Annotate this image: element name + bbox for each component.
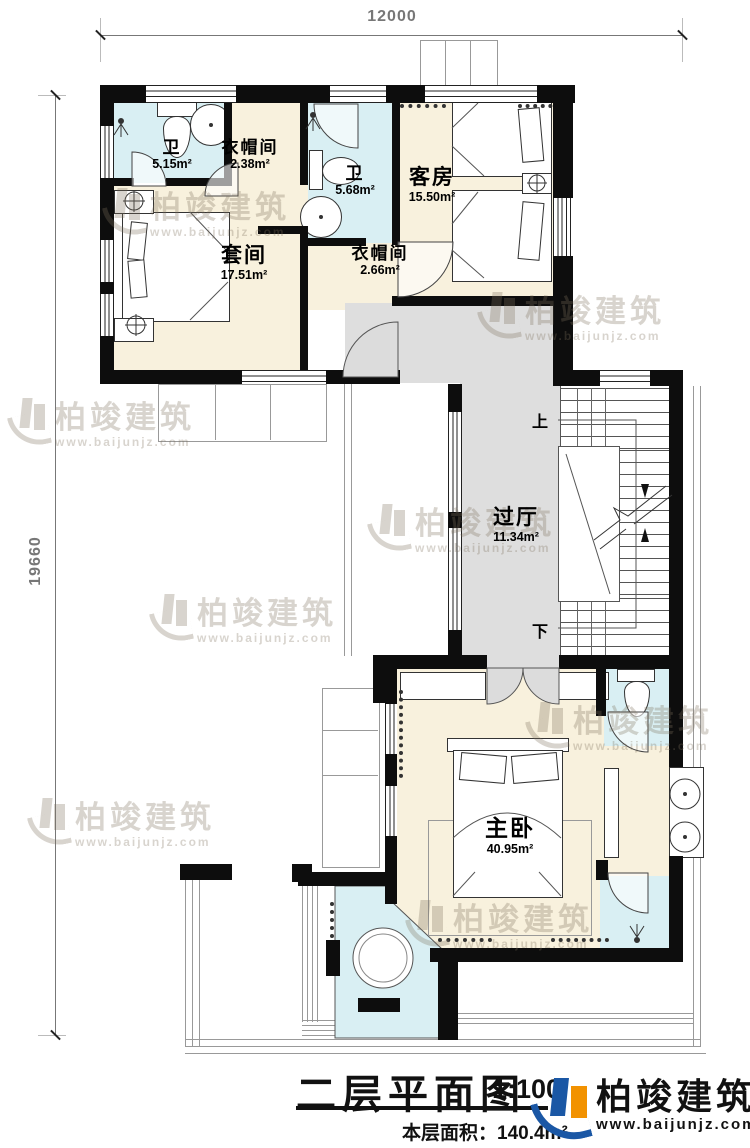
closet2-hangers xyxy=(306,246,326,308)
wall-segment xyxy=(326,940,340,976)
toilet-tank xyxy=(157,102,197,117)
wall-segment xyxy=(392,296,553,306)
wall-segment xyxy=(448,512,462,528)
wall-segment xyxy=(669,655,683,767)
window xyxy=(553,198,573,256)
dimension-height-label: 19660 xyxy=(27,531,45,591)
wall-segment xyxy=(300,95,308,185)
brand-url: www.baijunjz.com xyxy=(596,1116,750,1133)
window xyxy=(100,240,114,282)
wall-segment xyxy=(430,948,683,962)
closet1-hangers xyxy=(234,106,302,124)
curtain-coil xyxy=(400,104,446,108)
wall-segment xyxy=(100,178,134,186)
pillow xyxy=(459,752,507,784)
wall-segment xyxy=(669,856,683,962)
window xyxy=(385,786,397,836)
curtain-coil xyxy=(438,938,492,942)
window xyxy=(330,85,386,103)
stair-flight-mid xyxy=(618,450,669,600)
vanity-counter xyxy=(669,767,704,858)
room-label-suite: 套间 17.51m² xyxy=(196,244,292,282)
room-label-hall: 过厅 11.34m² xyxy=(470,506,562,544)
brand-logo-icon xyxy=(534,1078,592,1140)
wall-segment xyxy=(438,948,458,1040)
window xyxy=(100,126,114,178)
wall-segment xyxy=(300,226,308,374)
window xyxy=(448,528,462,630)
pillow xyxy=(127,259,147,298)
wall-segment xyxy=(326,370,400,384)
brand-name: 柏竣建筑 xyxy=(596,1078,750,1116)
pillow xyxy=(511,752,559,784)
wall-segment xyxy=(448,384,462,412)
room-label-closet1: 衣帽间 2.38m² xyxy=(200,138,300,171)
window xyxy=(242,370,326,384)
closet2-hangers xyxy=(326,288,392,308)
pillow xyxy=(518,107,545,163)
window xyxy=(425,85,537,103)
curtain-coil xyxy=(551,938,609,942)
stair-up-label: 上 xyxy=(532,408,548,432)
curtain-coil xyxy=(346,364,390,368)
curtain-coil xyxy=(330,902,334,938)
stair-down-label: 下 xyxy=(532,618,548,642)
nightstand xyxy=(114,190,154,214)
wall-segment xyxy=(448,630,462,658)
window xyxy=(100,294,114,336)
brand-block: 柏竣建筑 www.baijunjz.com xyxy=(534,1078,750,1140)
window xyxy=(146,85,236,103)
wall-post xyxy=(292,864,312,882)
window xyxy=(448,412,462,512)
floor-plan-canvas: 12000 19660 xyxy=(0,0,750,1148)
wall-segment xyxy=(298,872,392,886)
wall-segment xyxy=(100,370,242,384)
wall-segment xyxy=(358,998,400,1012)
room-label-master: 主卧 40.95m² xyxy=(458,816,562,856)
curtain-coil xyxy=(399,690,403,778)
window xyxy=(600,370,650,386)
nightstand xyxy=(114,318,154,342)
wall-segment xyxy=(166,178,232,186)
nightstand xyxy=(522,173,552,194)
wall-post xyxy=(180,864,232,880)
wall-segment xyxy=(669,370,683,670)
room-label-closet2: 衣帽间 2.66m² xyxy=(336,244,424,277)
wall-segment xyxy=(596,860,608,880)
room-label-guest: 客房 15.50m² xyxy=(384,166,480,204)
wardrobe xyxy=(400,672,486,700)
window xyxy=(385,704,397,754)
wall-segment xyxy=(559,655,683,669)
stair-landing xyxy=(558,446,620,602)
title-underline xyxy=(296,1106,548,1110)
tv-console xyxy=(604,768,619,858)
wall-segment xyxy=(596,668,606,716)
dimension-width-label: 12000 xyxy=(330,8,454,26)
